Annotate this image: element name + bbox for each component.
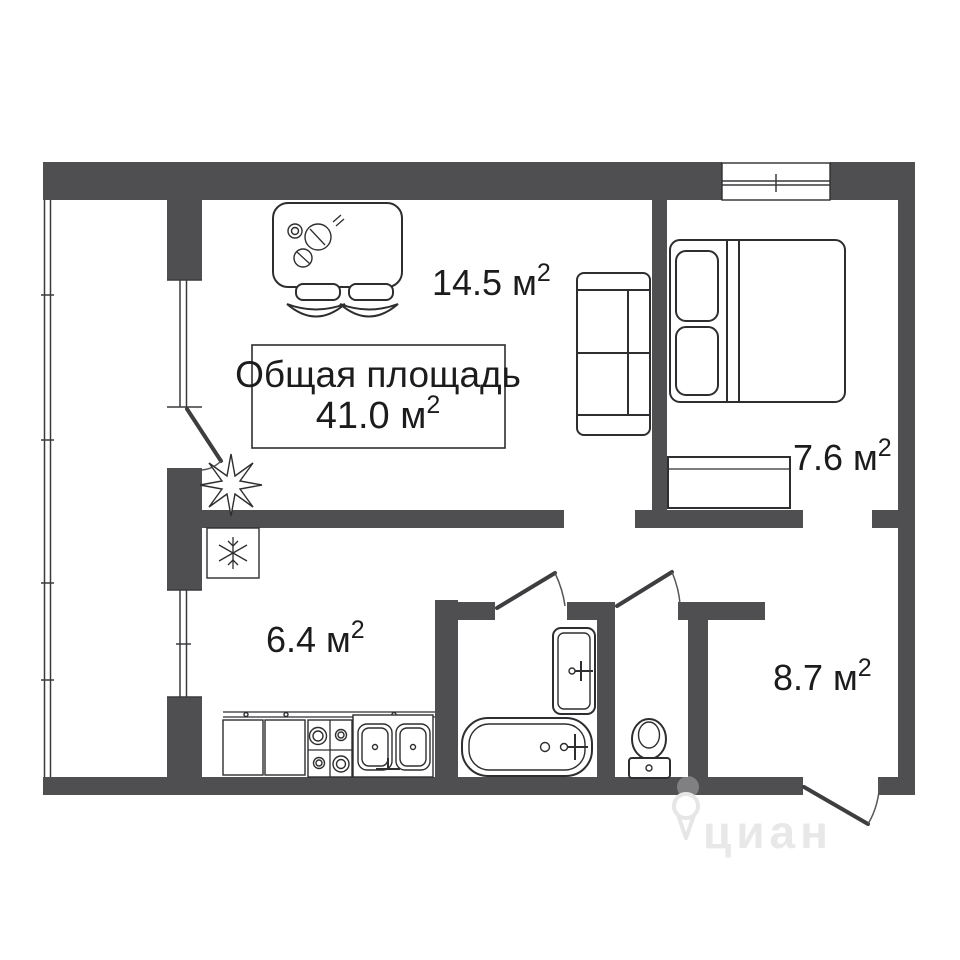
living-room-window [167,280,202,407]
wall-divider-under-bedroom [635,510,803,528]
balcony-door-leaf [187,409,221,461]
pillow [676,251,718,321]
kitchen-window [167,590,202,697]
cabinet [265,720,305,775]
floor-plan: 14.5 м2 7.6 м2 6.4 м2 8.7 м2 Общая площа… [0,0,960,960]
plant-icon [200,454,262,516]
dining-table [273,203,402,287]
bedroom-area-label: 7.6 м2 [793,434,892,478]
wall-bathroom-top-left [435,602,495,620]
wc-door-swing-arc [672,572,680,604]
cabinet [223,720,263,775]
bedroom-window [722,163,830,200]
sofa [577,273,650,435]
wall-right [898,162,915,795]
living-room-area-label: 14.5 м2 [432,259,551,303]
stove [308,720,352,777]
wall-wc-right [688,620,708,777]
wall-bottom-right [878,777,915,795]
wall-bedroom-left [652,200,667,510]
total-area-box: Общая площадь 41.0 м2 [235,345,521,448]
toilet [629,719,670,778]
wall-left-upper [167,190,202,280]
kitchen-area-label: 6.4 м2 [266,616,365,660]
hallway-area-label: 8.7 м2 [773,654,872,698]
wall-wc-top-right [678,602,765,620]
bathtub [462,718,592,776]
wall-between-doors [567,602,615,620]
wall-kitchen-bathroom [435,600,458,777]
pillow [676,327,718,395]
blanket-fold [727,240,739,402]
double-bed [670,240,845,402]
wall-left-middle [167,468,202,590]
total-area-title: Общая площадь [235,354,521,395]
wc-door [617,572,680,606]
bathroom-door-leaf [497,573,555,608]
balcony-glazing [41,200,54,777]
bathroom-door [497,573,565,608]
bathroom-door-swing-arc [555,573,565,606]
chair [287,284,345,317]
wall-wc-left [597,620,615,777]
floor-plan-page: 14.5 м2 7.6 м2 6.4 м2 8.7 м2 Общая площа… [0,0,960,960]
balcony-door [187,409,221,470]
watermark-brand: циан [703,806,833,858]
chair [340,284,398,317]
dresser [668,457,790,508]
wc-door-leaf [617,572,672,606]
wall-stub-right-of-bedroom-door [872,510,902,528]
wall-top-left [43,162,722,200]
wall-divider-left [167,510,564,528]
washbasin [553,628,595,714]
kitchen-sink [353,715,433,777]
fridge [207,528,259,578]
total-area-value: 41.0 м2 [316,391,441,437]
